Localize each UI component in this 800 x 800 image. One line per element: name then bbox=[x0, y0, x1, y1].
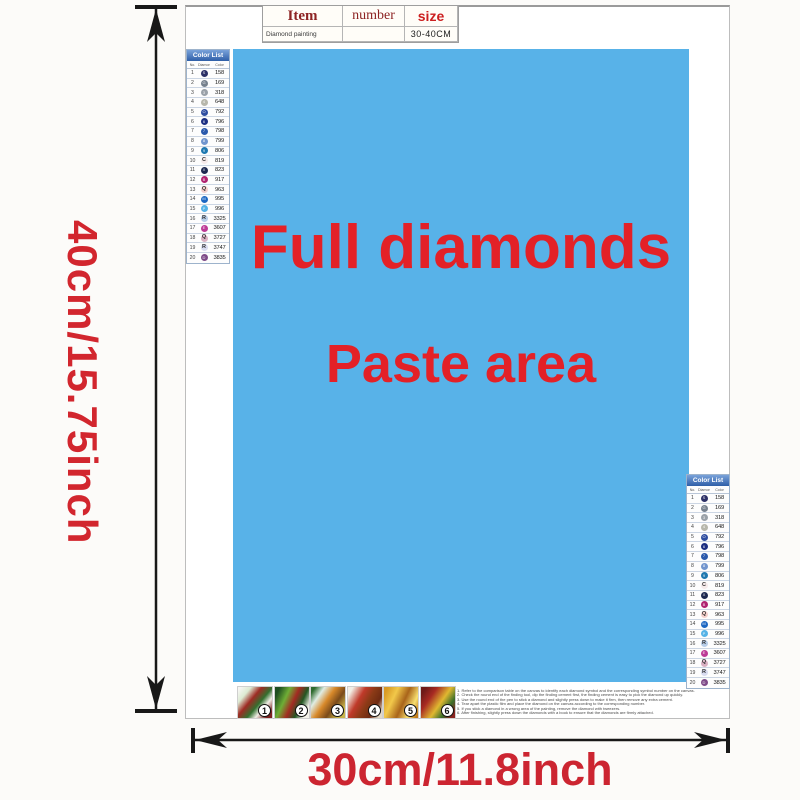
color-number: 5 bbox=[687, 534, 698, 540]
diamond-color-swatch-icon: P bbox=[201, 205, 208, 212]
color-list-col-no: No. bbox=[687, 488, 698, 492]
diamond-symbol-cell: E bbox=[698, 650, 710, 657]
color-number: 3 bbox=[687, 515, 698, 521]
color-list-row: 13Q963 bbox=[687, 610, 729, 620]
diamond-symbol-cell: 6 bbox=[198, 118, 210, 125]
color-list-row: 18Q3727 bbox=[687, 659, 729, 669]
diamond-symbol-cell: Q bbox=[198, 186, 210, 193]
color-list-row: 12B917 bbox=[187, 176, 229, 186]
dmc-color-code: 823 bbox=[710, 592, 729, 598]
color-list-row: 2G169 bbox=[687, 504, 729, 514]
diamond-color-swatch-icon: Q bbox=[201, 235, 208, 242]
diamond-symbol-cell: Q bbox=[698, 660, 710, 667]
color-number: 17 bbox=[187, 225, 198, 231]
diamond-symbol-cell: P bbox=[198, 205, 210, 212]
color-list-row: 12B917 bbox=[687, 601, 729, 611]
color-number: 20 bbox=[687, 680, 698, 686]
dmc-color-code: 806 bbox=[210, 148, 229, 154]
step-thumbnail: 3 bbox=[310, 686, 346, 719]
color-list-row: 10C819 bbox=[187, 156, 229, 166]
color-list-row: 66796 bbox=[687, 542, 729, 552]
dmc-color-code: 3747 bbox=[710, 670, 729, 676]
color-list-col-color: Color bbox=[710, 488, 729, 492]
diamond-color-swatch-icon: Q bbox=[701, 660, 708, 667]
color-list-row: 11X823 bbox=[687, 591, 729, 601]
diamond-color-swatch-icon: 6 bbox=[201, 118, 208, 125]
diamond-color-swatch-icon: R bbox=[201, 215, 208, 222]
diamond-symbol-cell: R bbox=[698, 669, 710, 676]
diamond-color-swatch-icon: C bbox=[701, 582, 708, 589]
color-number: 6 bbox=[687, 544, 698, 550]
dmc-color-code: 995 bbox=[210, 196, 229, 202]
diamond-color-swatch-icon: B bbox=[201, 176, 208, 183]
diamond-painting-canvas: Item number size Diamond painting 30-40C… bbox=[185, 5, 730, 719]
dmc-color-code: 806 bbox=[710, 573, 729, 579]
color-list-title: Color List bbox=[687, 475, 729, 486]
color-number: 3 bbox=[187, 90, 198, 96]
color-list-row: 5O792 bbox=[187, 108, 229, 118]
diamond-symbol-cell: 7 bbox=[698, 553, 710, 560]
color-list-row: 10C819 bbox=[687, 581, 729, 591]
diamond-color-swatch-icon: 9 bbox=[701, 572, 708, 579]
diamond-symbol-cell: 3 bbox=[698, 514, 710, 521]
color-number: 6 bbox=[187, 119, 198, 125]
color-list-row: 19R3747 bbox=[187, 243, 229, 253]
width-dimension-label: 30cm/11.8inch bbox=[185, 744, 735, 796]
diamond-color-swatch-icon: Q bbox=[201, 186, 208, 193]
color-list-col-diamond: Diamond bbox=[198, 63, 210, 67]
product-image-canvas: 40cm/15.75inch 30cm/11.8inch Item number… bbox=[0, 0, 800, 800]
dmc-color-code: 917 bbox=[710, 602, 729, 608]
color-number: 10 bbox=[187, 158, 198, 164]
dmc-color-code: 318 bbox=[710, 515, 729, 521]
diamond-color-swatch-icon: B bbox=[701, 601, 708, 608]
dmc-color-code: 799 bbox=[210, 138, 229, 144]
diamond-symbol-cell: O bbox=[198, 109, 210, 116]
diamond-color-swatch-icon: X bbox=[701, 592, 708, 599]
dmc-color-code: 995 bbox=[710, 621, 729, 627]
dmc-color-code: 796 bbox=[210, 119, 229, 125]
color-list-rows: 1S1582G16933318446485O792667967779888799… bbox=[687, 494, 729, 688]
color-number: 13 bbox=[187, 187, 198, 193]
color-list-col-no: No. bbox=[187, 63, 198, 67]
diamond-symbol-cell: O bbox=[698, 534, 710, 541]
dmc-color-code: 799 bbox=[710, 563, 729, 569]
diamond-symbol-cell: 6 bbox=[698, 543, 710, 550]
dmc-color-code: 963 bbox=[710, 612, 729, 618]
color-list-row: 77798 bbox=[187, 127, 229, 137]
height-dimension-arrow bbox=[130, 0, 182, 725]
color-number: 15 bbox=[687, 631, 698, 637]
diamond-symbol-cell: M bbox=[698, 621, 710, 628]
color-number: 10 bbox=[687, 583, 698, 589]
diamond-symbol-cell: C bbox=[198, 157, 210, 164]
color-list-title: Color List bbox=[187, 50, 229, 61]
color-number: 11 bbox=[187, 167, 198, 173]
color-number: 2 bbox=[187, 80, 198, 86]
color-list-row: 20D3835 bbox=[687, 678, 729, 688]
diamond-color-swatch-icon: G bbox=[201, 80, 208, 87]
color-number: 4 bbox=[187, 99, 198, 105]
dmc-color-code: 3835 bbox=[710, 680, 729, 686]
item-table-header-item: Item bbox=[263, 6, 343, 27]
color-number: 1 bbox=[187, 70, 198, 76]
color-list-row: 11X823 bbox=[187, 166, 229, 176]
diamond-symbol-cell: E bbox=[198, 225, 210, 232]
color-list-row: 44648 bbox=[187, 98, 229, 108]
step-thumbnail: 1 bbox=[237, 686, 273, 719]
color-list-table-left: Color List No. Diamond Color 1S1582G1693… bbox=[186, 49, 230, 264]
color-number: 4 bbox=[687, 524, 698, 530]
dmc-color-code: 963 bbox=[210, 187, 229, 193]
color-list-columns: No. Diamond Color bbox=[687, 486, 729, 494]
step-number-badge: 5 bbox=[404, 704, 417, 717]
diamond-color-swatch-icon: M bbox=[701, 621, 708, 628]
diamond-color-swatch-icon: Q bbox=[701, 611, 708, 618]
diamond-symbol-cell: D bbox=[698, 679, 710, 686]
color-list-row: 16R3325 bbox=[187, 214, 229, 224]
diamond-color-swatch-icon: R bbox=[701, 669, 708, 676]
color-list-row: 19R3747 bbox=[687, 668, 729, 678]
diamond-symbol-cell: 9 bbox=[198, 147, 210, 154]
diamond-color-swatch-icon: 3 bbox=[701, 514, 708, 521]
diamond-symbol-cell: S bbox=[698, 495, 710, 502]
paste-area-title-line2: Paste area bbox=[326, 337, 596, 391]
color-number: 14 bbox=[187, 196, 198, 202]
dmc-color-code: 996 bbox=[710, 631, 729, 637]
color-list-columns: No. Diamond Color bbox=[187, 61, 229, 69]
height-dimension-label: 40cm/15.75inch bbox=[58, 220, 106, 545]
diamond-color-swatch-icon: 7 bbox=[201, 128, 208, 135]
step-thumbnail: 2 bbox=[274, 686, 310, 719]
color-list-col-color: Color bbox=[210, 63, 229, 67]
steps-thumbnails-row: 123456 bbox=[237, 686, 456, 719]
dmc-color-code: 169 bbox=[210, 80, 229, 86]
diamond-color-swatch-icon: R bbox=[201, 244, 208, 251]
dmc-color-code: 792 bbox=[710, 534, 729, 540]
diamond-color-swatch-icon: C bbox=[201, 157, 208, 164]
dmc-color-code: 648 bbox=[710, 524, 729, 530]
color-number: 9 bbox=[687, 573, 698, 579]
diamond-color-swatch-icon: 4 bbox=[701, 524, 708, 531]
dmc-color-code: 648 bbox=[210, 99, 229, 105]
diamond-symbol-cell: X bbox=[698, 592, 710, 599]
color-number: 2 bbox=[687, 505, 698, 511]
color-list-col-diamond: Diamond bbox=[698, 488, 710, 492]
dmc-color-code: 3727 bbox=[210, 235, 229, 241]
step-number-badge: 2 bbox=[295, 704, 308, 717]
diamond-color-swatch-icon: O bbox=[201, 109, 208, 116]
dmc-color-code: 819 bbox=[210, 158, 229, 164]
dmc-color-code: 3325 bbox=[210, 216, 229, 222]
dmc-color-code: 318 bbox=[210, 90, 229, 96]
diamond-symbol-cell: C bbox=[698, 582, 710, 589]
diamond-symbol-cell: R bbox=[698, 640, 710, 647]
dmc-color-code: 798 bbox=[710, 553, 729, 559]
diamond-color-swatch-icon: 7 bbox=[701, 553, 708, 560]
diamond-color-swatch-icon: 8 bbox=[701, 563, 708, 570]
diamond-color-swatch-icon: 6 bbox=[701, 543, 708, 550]
diamond-color-swatch-icon: P bbox=[701, 630, 708, 637]
color-list-row: 77798 bbox=[687, 552, 729, 562]
color-list-row: 44648 bbox=[687, 523, 729, 533]
color-list-row: 14M995 bbox=[187, 195, 229, 205]
diamond-color-swatch-icon: E bbox=[701, 650, 708, 657]
diamond-symbol-cell: S bbox=[198, 70, 210, 77]
instruction-line: 6. After finishing, slightly press down … bbox=[457, 711, 719, 715]
color-list-row: 16R3325 bbox=[687, 639, 729, 649]
color-number: 8 bbox=[187, 138, 198, 144]
diamond-symbol-cell: B bbox=[198, 176, 210, 183]
dmc-color-code: 792 bbox=[210, 109, 229, 115]
color-number: 20 bbox=[187, 255, 198, 261]
color-number: 11 bbox=[687, 592, 698, 598]
color-list-row: 15P996 bbox=[687, 630, 729, 640]
dmc-color-code: 796 bbox=[710, 544, 729, 550]
diamond-color-swatch-icon: M bbox=[201, 196, 208, 203]
step-number-badge: 4 bbox=[368, 704, 381, 717]
diamond-symbol-cell: G bbox=[698, 505, 710, 512]
diamond-color-swatch-icon: 8 bbox=[201, 138, 208, 145]
color-list-row: 17E3607 bbox=[187, 224, 229, 234]
color-number: 16 bbox=[687, 641, 698, 647]
diamond-color-swatch-icon: D bbox=[701, 679, 708, 686]
step-thumbnail: 5 bbox=[383, 686, 419, 719]
color-list-rows: 1S1582G16933318446485O792667967779888799… bbox=[187, 69, 229, 263]
dmc-color-code: 3835 bbox=[210, 255, 229, 261]
color-number: 7 bbox=[187, 128, 198, 134]
item-table-value-number bbox=[343, 27, 405, 42]
color-list-table-right: Color List No. Diamond Color 1S1582G1693… bbox=[686, 474, 730, 689]
color-list-row: 1S158 bbox=[187, 69, 229, 79]
color-number: 1 bbox=[687, 495, 698, 501]
diamond-color-swatch-icon: R bbox=[701, 640, 708, 647]
item-table-header-size: size bbox=[405, 6, 458, 27]
dmc-color-code: 169 bbox=[710, 505, 729, 511]
color-number: 8 bbox=[687, 563, 698, 569]
diamond-color-swatch-icon: O bbox=[701, 534, 708, 541]
diamond-color-swatch-icon: E bbox=[201, 225, 208, 232]
step-number-badge: 3 bbox=[331, 704, 344, 717]
diamond-symbol-cell: 8 bbox=[198, 138, 210, 145]
diamond-symbol-cell: Q bbox=[698, 611, 710, 618]
paste-area-title-line1: Full diamonds bbox=[251, 217, 671, 279]
diamond-symbol-cell: 4 bbox=[698, 524, 710, 531]
color-list-row: 99806 bbox=[187, 147, 229, 157]
diamond-symbol-cell: P bbox=[698, 630, 710, 637]
paste-area: Full diamonds Paste area bbox=[233, 49, 689, 682]
item-info-table: Item number size Diamond painting 30-40C… bbox=[262, 5, 459, 43]
diamond-symbol-cell: 8 bbox=[698, 563, 710, 570]
step-thumbnail: 4 bbox=[347, 686, 383, 719]
step-number-badge: 6 bbox=[441, 704, 454, 717]
color-number: 18 bbox=[187, 235, 198, 241]
dmc-color-code: 3607 bbox=[210, 225, 229, 231]
color-list-row: 1S158 bbox=[687, 494, 729, 504]
diamond-symbol-cell: G bbox=[198, 80, 210, 87]
dmc-color-code: 996 bbox=[210, 206, 229, 212]
item-table-header-number: number bbox=[343, 6, 405, 27]
color-number: 18 bbox=[687, 660, 698, 666]
dmc-color-code: 819 bbox=[710, 583, 729, 589]
diamond-color-swatch-icon: 3 bbox=[201, 89, 208, 96]
diamond-symbol-cell: 9 bbox=[698, 572, 710, 579]
diamond-symbol-cell: Q bbox=[198, 235, 210, 242]
color-list-row: 33318 bbox=[687, 513, 729, 523]
color-list-row: 20D3835 bbox=[187, 253, 229, 263]
diamond-color-swatch-icon: X bbox=[201, 167, 208, 174]
color-list-row: 66796 bbox=[187, 117, 229, 127]
diamond-color-swatch-icon: 9 bbox=[201, 147, 208, 154]
item-table-value-item: Diamond painting bbox=[263, 27, 343, 42]
color-list-row: 5O792 bbox=[687, 533, 729, 543]
color-list-row: 14M995 bbox=[687, 620, 729, 630]
diamond-symbol-cell: 7 bbox=[198, 128, 210, 135]
diamond-symbol-cell: D bbox=[198, 254, 210, 261]
diamond-symbol-cell: M bbox=[198, 196, 210, 203]
color-number: 19 bbox=[187, 245, 198, 251]
step-number-badge: 1 bbox=[258, 704, 271, 717]
color-list-row: 18Q3727 bbox=[187, 234, 229, 244]
color-number: 16 bbox=[187, 216, 198, 222]
color-list-row: 15P996 bbox=[187, 205, 229, 215]
diamond-color-swatch-icon: 4 bbox=[201, 99, 208, 106]
color-list-row: 2G169 bbox=[187, 79, 229, 89]
color-list-row: 88799 bbox=[187, 137, 229, 147]
diamond-color-swatch-icon: D bbox=[201, 254, 208, 261]
color-list-row: 13Q963 bbox=[187, 185, 229, 195]
step-thumbnail: 6 bbox=[420, 686, 456, 719]
diamond-color-swatch-icon: S bbox=[701, 495, 708, 502]
diamond-symbol-cell: B bbox=[698, 601, 710, 608]
diamond-symbol-cell: R bbox=[198, 244, 210, 251]
color-number: 12 bbox=[187, 177, 198, 183]
color-number: 12 bbox=[687, 602, 698, 608]
color-number: 17 bbox=[687, 650, 698, 656]
diamond-symbol-cell: R bbox=[198, 215, 210, 222]
diamond-symbol-cell: 3 bbox=[198, 89, 210, 96]
color-list-row: 33318 bbox=[187, 88, 229, 98]
diamond-symbol-cell: X bbox=[198, 167, 210, 174]
color-number: 7 bbox=[687, 553, 698, 559]
dmc-color-code: 3607 bbox=[710, 650, 729, 656]
dmc-color-code: 3727 bbox=[710, 660, 729, 666]
color-number: 9 bbox=[187, 148, 198, 154]
diamond-color-swatch-icon: S bbox=[201, 70, 208, 77]
item-table-value-size: 30-40CM bbox=[405, 27, 458, 42]
color-number: 15 bbox=[187, 206, 198, 212]
dmc-color-code: 158 bbox=[210, 70, 229, 76]
color-number: 19 bbox=[687, 670, 698, 676]
dmc-color-code: 3747 bbox=[210, 245, 229, 251]
diamond-color-swatch-icon: G bbox=[701, 505, 708, 512]
color-number: 14 bbox=[687, 621, 698, 627]
diamond-symbol-cell: 4 bbox=[198, 99, 210, 106]
dmc-color-code: 798 bbox=[210, 128, 229, 134]
instructions-text-block: 1. Refer to the comparison table on the … bbox=[457, 689, 719, 715]
color-list-row: 88799 bbox=[687, 562, 729, 572]
dmc-color-code: 917 bbox=[210, 177, 229, 183]
color-number: 13 bbox=[687, 612, 698, 618]
dmc-color-code: 3325 bbox=[710, 641, 729, 647]
dmc-color-code: 158 bbox=[710, 495, 729, 501]
color-list-row: 17E3607 bbox=[687, 649, 729, 659]
color-number: 5 bbox=[187, 109, 198, 115]
color-list-row: 99806 bbox=[687, 572, 729, 582]
dmc-color-code: 823 bbox=[210, 167, 229, 173]
